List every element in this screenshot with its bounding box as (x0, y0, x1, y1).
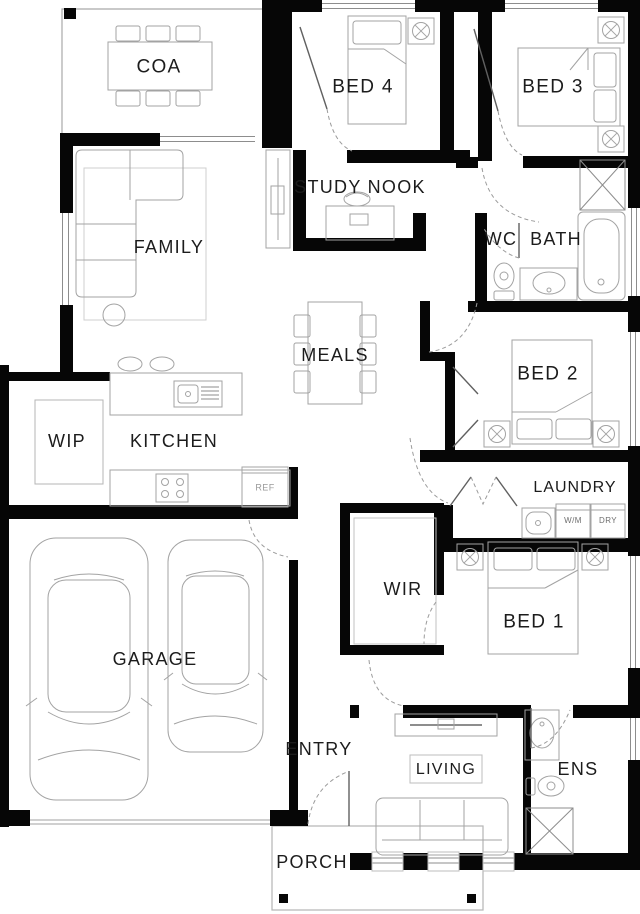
room-label-coa: COA (136, 58, 181, 77)
bathtub-icon (578, 212, 625, 300)
fixture-label-fridge: REF (255, 484, 274, 493)
room-label-bath: BATH (530, 230, 582, 248)
car-icon-small (164, 540, 267, 752)
room-label-bed1: BED 1 (503, 613, 564, 632)
walls (0, 0, 640, 903)
room-label-ens: ENS (558, 760, 599, 778)
bed-icon-bed1 (488, 542, 578, 654)
toilet-icon-wc (494, 263, 514, 300)
side-table-icon (103, 304, 125, 326)
room-label-wir: WIR (384, 580, 423, 598)
kitchen-island-icon (110, 357, 242, 415)
desk-icon (326, 192, 394, 240)
shower-icon-ens (526, 808, 573, 854)
robe-icon (484, 421, 510, 447)
bedside-table-icon (408, 18, 434, 44)
stool-icon (118, 357, 142, 371)
window-bed2-right (627, 332, 640, 446)
room-label-study-nook: STUDY NOOK (294, 178, 426, 196)
floor-plan-page: COA BED 4 BED 3 STUDY NOOK FAMILY WC BAT… (0, 0, 640, 914)
window-bath-right (628, 208, 640, 296)
room-label-kitchen: KITCHEN (130, 432, 218, 450)
toilet-icon-ens (526, 776, 564, 796)
tall-cabinet-icon (266, 150, 290, 248)
room-label-laundry: LAUNDRY (533, 480, 616, 496)
fixture-label-dryer: DRY (599, 517, 617, 525)
car-icon-large (26, 538, 152, 800)
vanity-icon-bath (520, 268, 577, 300)
sink-drainer (201, 387, 219, 399)
room-label-family: FAMILY (134, 238, 204, 256)
room-label-wip: WIP (48, 432, 86, 450)
room-label-bed3: BED 3 (522, 78, 583, 97)
cooktop-icon (156, 474, 188, 502)
room-label-bed4: BED 4 (332, 78, 393, 97)
window-bed1-right (627, 556, 640, 668)
room-label-garage: GARAGE (113, 650, 198, 668)
bedside-table-icon (598, 17, 624, 43)
room-label-porch: PORCH (276, 853, 348, 871)
window-ens-right (627, 718, 640, 760)
window-coa-family (160, 133, 255, 146)
robe-icon (593, 421, 619, 447)
room-label-entry: ENTRY (285, 740, 352, 758)
room-label-living: LIVING (416, 762, 476, 778)
floor-plan-drawing (0, 0, 640, 914)
window-family-left (58, 213, 74, 305)
fixture-label-washing-machine: W/M (564, 517, 582, 525)
room-label-meals: MEALS (301, 346, 369, 364)
bed-icon-bed2 (512, 340, 592, 444)
room-label-bed2: BED 2 (517, 365, 578, 384)
bed-icon-bed4 (348, 16, 406, 124)
bedside-table-icon (598, 126, 624, 152)
stool-icon (150, 357, 174, 371)
window-bed4-top (322, 0, 415, 12)
window-bed3-top (505, 0, 598, 12)
room-label-wc: WC (485, 230, 518, 248)
